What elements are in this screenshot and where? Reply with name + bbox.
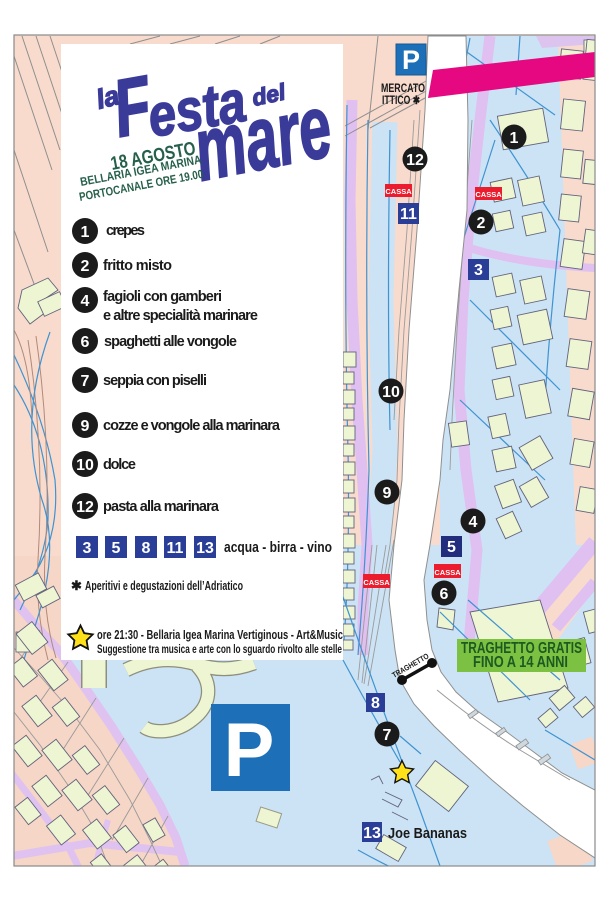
svg-text:CASSA: CASSA: [385, 187, 412, 196]
svg-text:crepes: crepes: [106, 223, 145, 239]
svg-text:6: 6: [440, 586, 449, 603]
svg-text:1: 1: [81, 224, 90, 241]
svg-text:9: 9: [81, 418, 90, 435]
svg-text:13: 13: [196, 540, 214, 557]
svg-text:P: P: [224, 708, 275, 793]
svg-text:11: 11: [400, 206, 417, 223]
svg-text:spaghetti alle vongole: spaghetti alle vongole: [104, 334, 237, 350]
svg-text:5: 5: [112, 540, 121, 557]
svg-text:5: 5: [447, 539, 456, 556]
svg-text:4: 4: [469, 514, 478, 531]
svg-text:MERCATO: MERCATO: [381, 83, 425, 95]
svg-text:fagioli con gamberi: fagioli con gamberi: [103, 289, 222, 305]
svg-text:FINO A 14 ANNI: FINO A 14 ANNI: [473, 654, 568, 671]
svg-text:e altre specialità marinare: e altre specialità marinare: [103, 308, 258, 324]
svg-text:10: 10: [382, 384, 400, 401]
svg-text:cozze e vongole alla marinara: cozze e vongole alla marinara: [103, 418, 281, 434]
svg-text:ore 21:30 - Bellaria Igea Mari: ore 21:30 - Bellaria Igea Marina Vertigi…: [97, 628, 343, 642]
svg-text:11: 11: [167, 540, 184, 557]
svg-text:8: 8: [371, 695, 380, 712]
svg-text:acqua - birra - vino: acqua - birra - vino: [224, 540, 332, 556]
svg-text:fritto misto: fritto misto: [103, 258, 172, 274]
svg-text:CASSA: CASSA: [475, 190, 502, 199]
svg-text:3: 3: [474, 262, 483, 279]
svg-text:7: 7: [383, 727, 392, 744]
svg-text:4: 4: [81, 293, 90, 310]
svg-text:CASSA: CASSA: [363, 578, 390, 587]
svg-text:ITTICO ✱: ITTICO ✱: [382, 95, 420, 107]
svg-text:Suggestione tra musica e arte: Suggestione tra musica e arte con lo sgu…: [97, 644, 342, 656]
svg-text:10: 10: [76, 457, 94, 474]
svg-text:7: 7: [81, 373, 90, 390]
svg-text:8: 8: [142, 540, 151, 557]
svg-text:dolce: dolce: [103, 457, 136, 473]
svg-text:3: 3: [83, 540, 92, 557]
svg-text:CASSA: CASSA: [434, 568, 461, 577]
svg-text:6: 6: [81, 334, 90, 351]
svg-text:2: 2: [81, 258, 90, 275]
svg-text:2: 2: [477, 215, 486, 232]
svg-text:pasta alla marinara: pasta alla marinara: [103, 499, 220, 515]
svg-text:1: 1: [510, 130, 519, 147]
svg-text:Aperitivi e degustazioni dell’: Aperitivi e degustazioni dell’Adriatico: [85, 579, 243, 593]
svg-text:9: 9: [383, 485, 392, 502]
svg-text:13: 13: [363, 825, 381, 842]
svg-text:12: 12: [76, 499, 94, 516]
svg-text:12: 12: [406, 152, 424, 169]
svg-text:Joe Bananas: Joe Bananas: [388, 825, 467, 842]
svg-text:P: P: [402, 45, 420, 75]
svg-text:✱: ✱: [71, 578, 82, 593]
svg-text:seppia con piselli: seppia con piselli: [103, 373, 207, 389]
